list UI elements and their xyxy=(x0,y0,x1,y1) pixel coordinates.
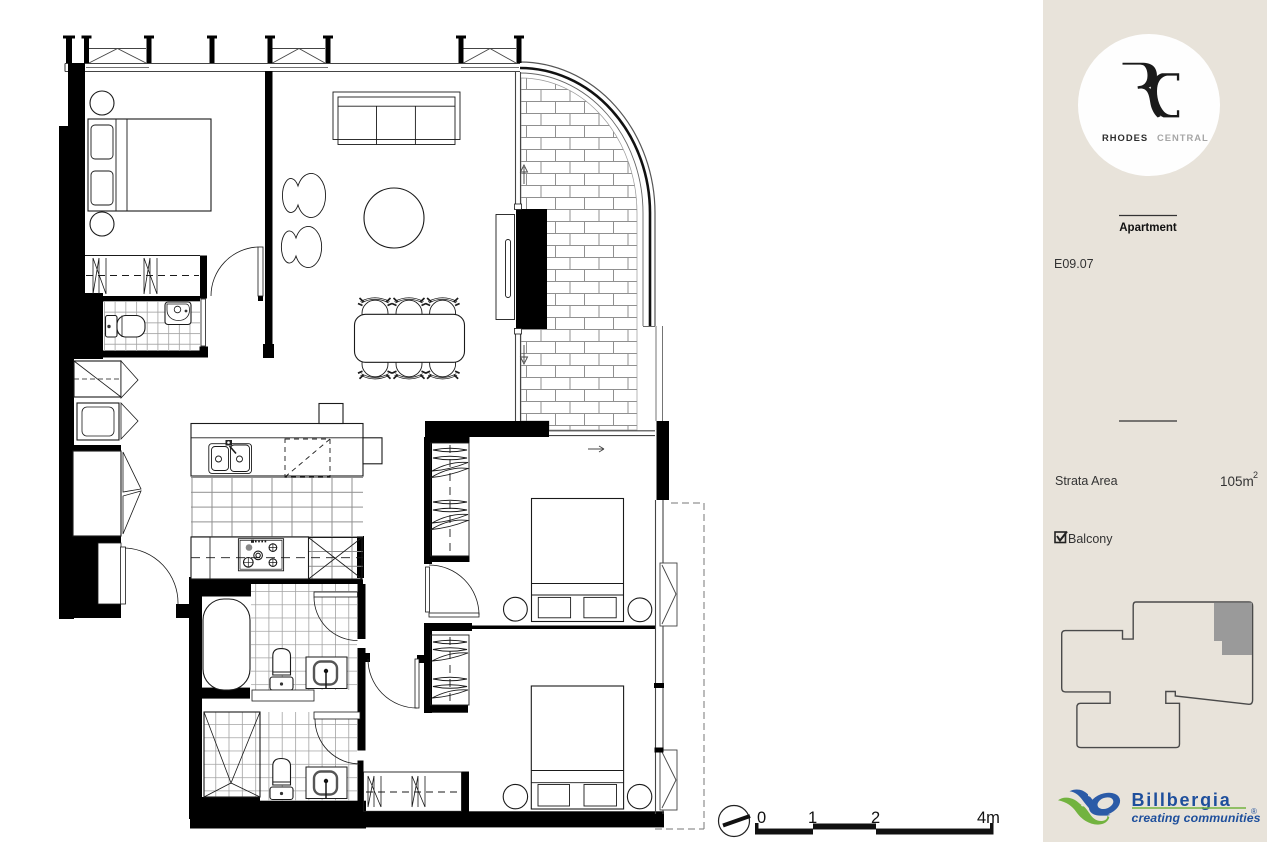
svg-text:creating communities: creating communities xyxy=(1132,811,1261,825)
svg-text:1: 1 xyxy=(808,809,817,827)
svg-text:E09.07: E09.07 xyxy=(1054,257,1094,271)
svg-text:Apartment: Apartment xyxy=(1119,222,1177,234)
svg-text:®: ® xyxy=(1251,807,1257,816)
svg-text:Balcony: Balcony xyxy=(1068,532,1113,546)
svg-text:2: 2 xyxy=(1253,470,1258,480)
svg-text:Billbergia: Billbergia xyxy=(1132,790,1232,810)
svg-text:Strata Area: Strata Area xyxy=(1055,474,1118,488)
svg-text:105m: 105m xyxy=(1220,474,1254,489)
svg-text:RHODES: RHODES xyxy=(1102,132,1148,143)
svg-text:4m: 4m xyxy=(977,809,1000,827)
svg-text:0: 0 xyxy=(757,809,766,827)
svg-text:CENTRAL: CENTRAL xyxy=(1157,132,1209,143)
svg-text:2: 2 xyxy=(871,809,880,827)
